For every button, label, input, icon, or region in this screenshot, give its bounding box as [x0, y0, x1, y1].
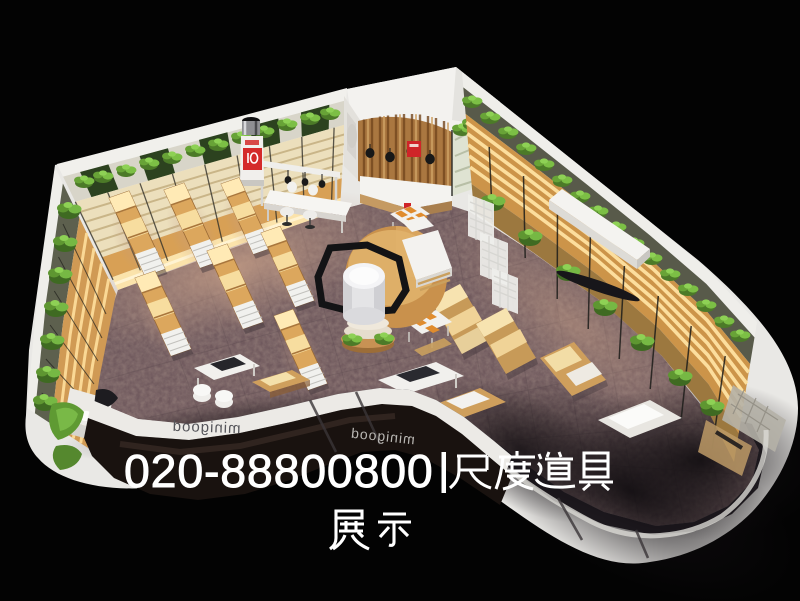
- svg-text:minigood: minigood: [171, 418, 240, 437]
- svg-text:020-88800800: 020-88800800: [124, 445, 434, 497]
